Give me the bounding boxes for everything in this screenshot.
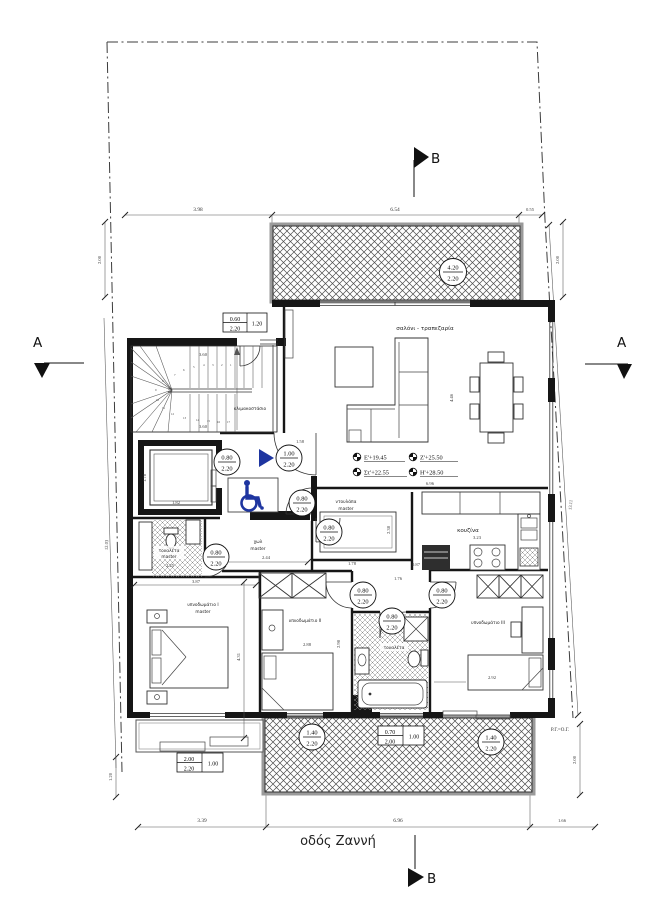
svg-text:0.80: 0.80 bbox=[296, 496, 307, 503]
door-label-balcony-right: 1.40 2.20 bbox=[478, 729, 504, 755]
dim-bottom-3: 1.66 bbox=[558, 818, 567, 823]
section-a-left-label: A bbox=[33, 335, 43, 351]
elevator: 1.82 1.78 bbox=[138, 440, 222, 515]
dim-top-2: 6.54 bbox=[390, 207, 400, 213]
room-label-closet-1: ντουλάπα bbox=[336, 498, 357, 505]
step-number: 11 bbox=[162, 406, 165, 410]
step-number: 14 bbox=[196, 418, 200, 422]
room-label-stairwell: κλιμακοστάσιο bbox=[234, 405, 267, 412]
step-number: 5 bbox=[193, 365, 195, 369]
living-room: σαλόνι - τραπεζαρία 4.46 Ε'+19.45 Στ'+22… bbox=[285, 310, 523, 486]
door-label-bedroom2: 0.80 2.20 bbox=[350, 582, 376, 608]
dim-closet-h: 2.38 bbox=[386, 525, 391, 534]
room-label-bathroom: τουαλέτα bbox=[384, 644, 405, 651]
dim-elevator-w: 1.82 bbox=[172, 500, 181, 505]
svg-text:1.00: 1.00 bbox=[283, 451, 294, 458]
floor-plan-canvas: 3.98 6.54 0.55 2.00 2.00 3.39 6.96 1.66 … bbox=[0, 0, 645, 901]
section-a-right-label: A bbox=[617, 335, 627, 351]
svg-text:2.20: 2.20 bbox=[283, 462, 294, 469]
dim-top-1: 3.98 bbox=[193, 207, 203, 213]
step-number: 1 bbox=[230, 363, 232, 367]
window-label-master: 2.00 2.20 1.00 bbox=[177, 753, 223, 772]
door-label-entrance: 1.00 2.20 bbox=[276, 445, 302, 471]
dim-living-h: 4.46 bbox=[449, 393, 454, 402]
step-number: 4 bbox=[203, 363, 205, 367]
dim-bedroom3-w: 2.92 bbox=[488, 675, 497, 680]
door-label-wc-master: 0.80 2.20 bbox=[203, 544, 229, 570]
svg-text:2.20: 2.20 bbox=[296, 507, 307, 514]
section-a-right-icon: A bbox=[585, 335, 632, 379]
level-z: Ζ'+25.50 bbox=[420, 455, 443, 462]
dim-closet-gap: 0.87 bbox=[412, 562, 421, 567]
step-number: 17 bbox=[227, 420, 231, 424]
svg-text:1.40: 1.40 bbox=[485, 735, 496, 742]
room-label-wc-master-1: τουαλέτα bbox=[159, 547, 180, 554]
svg-text:2.00: 2.00 bbox=[184, 757, 195, 763]
room-label-hall-2: master bbox=[250, 546, 265, 552]
door-label-bathroom: 0.80 2.20 bbox=[379, 608, 405, 634]
dim-bottom-1: 3.39 bbox=[197, 818, 207, 824]
door-label-elevator: 0.80 2.20 bbox=[214, 449, 240, 475]
section-b-top-icon: B bbox=[414, 147, 440, 197]
dim-bedroom2-w: 2.88 bbox=[303, 642, 312, 647]
dim-bottom-2: 6.96 bbox=[393, 818, 403, 824]
svg-text:2.20: 2.20 bbox=[210, 561, 221, 568]
step-number: 9 bbox=[155, 388, 157, 392]
room-label-hall-1: χωλ bbox=[254, 539, 263, 545]
dim-top-3: 0.55 bbox=[526, 207, 535, 212]
dim-corridor: 1.76 bbox=[394, 576, 403, 581]
section-b-top-label: B bbox=[431, 151, 440, 167]
svg-text:2.20: 2.20 bbox=[230, 326, 241, 332]
room-label-bedroom1-2: master bbox=[195, 609, 210, 615]
step-number: 10 bbox=[156, 398, 160, 402]
dim-bedroom2-h: 2.98 bbox=[336, 639, 341, 648]
level-e: Ε'+19.45 bbox=[364, 455, 387, 462]
boundary-note: Ρ.Γ.=Ο.Γ. bbox=[551, 728, 569, 733]
step-number: 15 bbox=[207, 419, 211, 423]
window-label-stair: 0.60 2.20 1.20 bbox=[223, 313, 267, 332]
kitchen: κουζίνα 3.23 bbox=[422, 492, 540, 570]
dim-closet-w: 1.78 bbox=[348, 561, 357, 566]
svg-text:0.80: 0.80 bbox=[221, 455, 232, 462]
level-h: Η'+28.50 bbox=[420, 470, 443, 477]
floor-plan-drawing: 3.98 6.54 0.55 2.00 2.00 3.39 6.96 1.66 … bbox=[0, 0, 645, 901]
svg-text:2.20: 2.20 bbox=[323, 536, 334, 543]
dim-kitchen-w: 3.23 bbox=[473, 535, 482, 540]
balcony-top bbox=[271, 224, 522, 302]
step-number: 13 bbox=[183, 416, 187, 420]
svg-text:0.70: 0.70 bbox=[385, 730, 396, 736]
dim-right-bottom: 2.00 bbox=[572, 755, 577, 764]
svg-text:2.20: 2.20 bbox=[447, 276, 458, 283]
svg-text:0.80: 0.80 bbox=[357, 588, 368, 595]
svg-text:1.40: 1.40 bbox=[306, 730, 317, 737]
door-label-balcony-top: 4.20 2.20 bbox=[440, 259, 467, 286]
level-st: Στ'+22.55 bbox=[364, 470, 389, 477]
section-b-bottom-label: B bbox=[427, 871, 436, 887]
step-number: 16 bbox=[217, 420, 221, 424]
entrance-arrow-icon bbox=[259, 449, 274, 467]
dim-elevator-h: 1.78 bbox=[142, 473, 147, 482]
dim-master-w: 3.87 bbox=[192, 579, 201, 584]
dim-master-h: 4.31 bbox=[236, 652, 241, 661]
svg-text:0.80: 0.80 bbox=[210, 550, 221, 557]
street-label: οδός Ζαννή bbox=[300, 834, 376, 849]
door-label-hall: 0.80 2.20 bbox=[289, 490, 315, 516]
door-label-balcony-left: 1.40 2.20 bbox=[299, 724, 325, 750]
dim-entry: 1.58 bbox=[296, 439, 305, 444]
svg-text:2.20: 2.20 bbox=[184, 766, 195, 772]
room-label-wc-master-2: master bbox=[161, 554, 176, 560]
svg-text:0.80: 0.80 bbox=[436, 588, 447, 595]
window-label-bath: 0.70 2.00 1.00 bbox=[378, 726, 424, 745]
svg-text:1.20: 1.20 bbox=[252, 322, 263, 328]
dim-wc-master: 2.25 bbox=[166, 563, 175, 568]
door-label-bedroom3: 0.80 2.20 bbox=[429, 582, 455, 608]
section-a-left-icon: A bbox=[33, 335, 84, 378]
dim-hall: 2.44 bbox=[262, 555, 271, 560]
svg-text:0.80: 0.80 bbox=[323, 525, 334, 532]
dim-left-bottom: 1.20 bbox=[108, 772, 113, 781]
step-number: 3 bbox=[212, 363, 214, 367]
step-number: 8 bbox=[162, 379, 164, 383]
dim-right-side: 13.11 bbox=[568, 499, 574, 510]
room-label-closet-2: master bbox=[338, 506, 353, 512]
room-label-bedroom1-1: υπνοδωμάτιο Ι bbox=[187, 601, 218, 608]
dim-left-side: 12.03 bbox=[104, 539, 109, 550]
dim-left-top: 2.00 bbox=[97, 255, 102, 264]
svg-text:2.20: 2.20 bbox=[386, 625, 397, 632]
svg-text:2.20: 2.20 bbox=[221, 466, 232, 473]
svg-text:1.00: 1.00 bbox=[409, 735, 420, 741]
section-b-bottom-icon: B bbox=[408, 835, 436, 887]
dim-stair-bottom: 3.60 bbox=[199, 424, 208, 429]
step-number: 12 bbox=[171, 412, 175, 416]
dim-stair-top: 3.60 bbox=[199, 352, 208, 357]
step-number: 7 bbox=[174, 373, 176, 377]
svg-text:0.60: 0.60 bbox=[230, 317, 241, 323]
svg-text:2.20: 2.20 bbox=[306, 741, 317, 748]
svg-text:1.00: 1.00 bbox=[208, 762, 219, 768]
step-number: 6 bbox=[183, 368, 185, 372]
svg-text:2.00: 2.00 bbox=[385, 739, 396, 745]
svg-text:2.20: 2.20 bbox=[436, 599, 447, 606]
door-label-closet: 0.80 2.20 bbox=[316, 519, 342, 545]
svg-text:4.20: 4.20 bbox=[447, 265, 458, 272]
room-label-kitchen: κουζίνα bbox=[457, 527, 479, 534]
room-label-bedroom2: υπνοδωμάτιο ΙΙ bbox=[289, 617, 321, 624]
stairwell: 1 2 3 4 5 6 7 8 9 10 11 12 13 14 15 16 1… bbox=[131, 346, 277, 432]
step-number: 2 bbox=[221, 363, 223, 367]
level-markers: Ε'+19.45 Στ'+22.55 Ζ'+25.50 Η'+28.50 bbox=[353, 453, 458, 476]
svg-text:2.20: 2.20 bbox=[357, 599, 368, 606]
room-label-living: σαλόνι - τραπεζαρία bbox=[396, 325, 454, 332]
svg-text:0.80: 0.80 bbox=[386, 614, 397, 621]
dim-right-top: 2.00 bbox=[555, 255, 560, 264]
dim-kitchen-top: 6.96 bbox=[426, 481, 435, 486]
bedroom-2: υπνοδωμάτιο ΙΙ 2.88 2.98 bbox=[262, 582, 352, 710]
room-label-bedroom3: υπνοδωμάτιο ΙΙΙ bbox=[471, 619, 505, 626]
svg-text:2.20: 2.20 bbox=[485, 746, 496, 753]
